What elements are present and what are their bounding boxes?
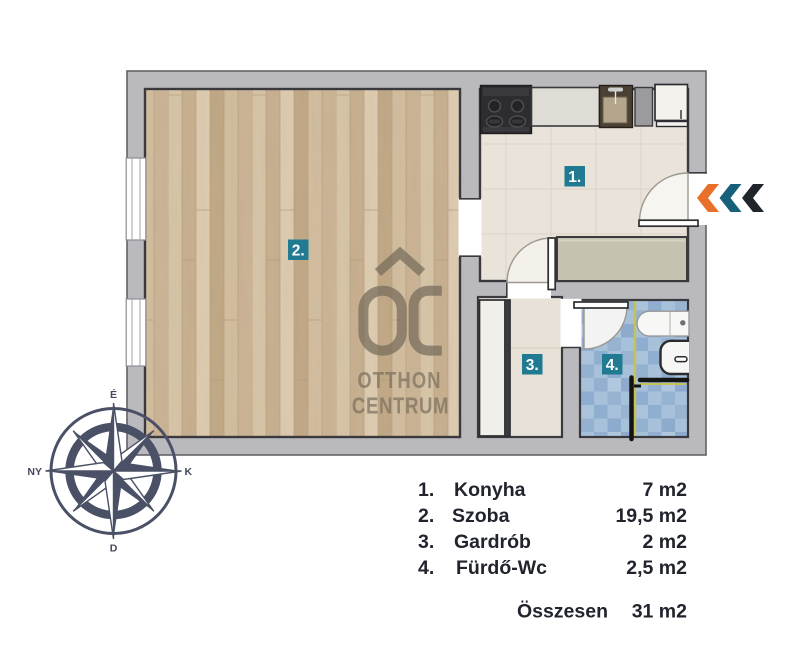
svg-text:2.: 2. [292, 242, 305, 259]
svg-text:3.: 3. [526, 357, 539, 374]
svg-text:K: K [185, 466, 193, 478]
svg-text:3.: 3. [418, 531, 434, 553]
svg-text:CENTRUM: CENTRUM [352, 394, 449, 420]
svg-text:1.: 1. [418, 479, 434, 501]
svg-text:Konyha: Konyha [454, 479, 526, 501]
svg-text:Összesen: Összesen [517, 600, 608, 623]
svg-text:2.: 2. [418, 505, 434, 527]
svg-text:2 m2: 2 m2 [643, 531, 688, 553]
svg-text:OTTHON: OTTHON [357, 368, 441, 394]
svg-text:4.: 4. [606, 357, 619, 374]
svg-text:Fürdő-Wc: Fürdő-Wc [456, 557, 547, 579]
svg-text:É: É [110, 388, 117, 401]
svg-text:31 m2: 31 m2 [632, 601, 687, 623]
svg-text:19,5 m2: 19,5 m2 [615, 505, 687, 527]
svg-text:2,5 m2: 2,5 m2 [626, 557, 687, 579]
svg-text:4.: 4. [418, 557, 434, 579]
svg-text:D: D [110, 543, 118, 555]
svg-text:7 m2: 7 m2 [643, 479, 688, 501]
svg-text:NY: NY [27, 466, 42, 478]
svg-text:1.: 1. [568, 169, 581, 186]
svg-text:Szoba: Szoba [452, 505, 510, 527]
svg-text:Gardrób: Gardrób [454, 531, 531, 553]
